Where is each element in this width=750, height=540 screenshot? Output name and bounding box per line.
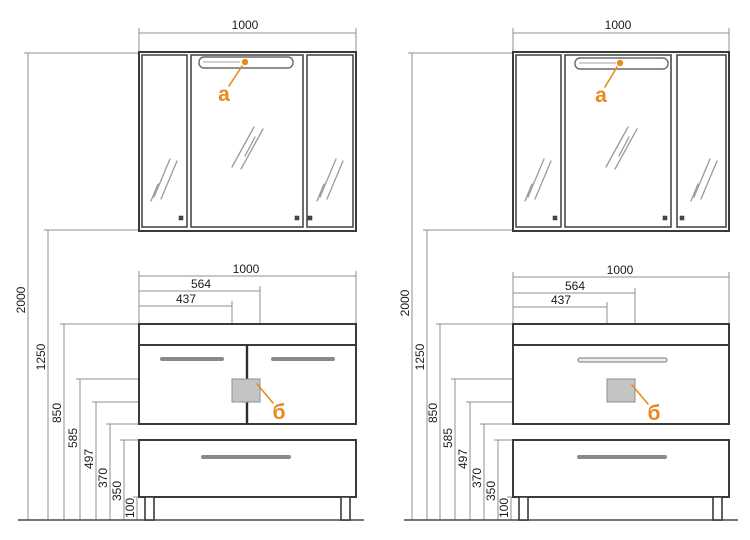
dimension-100: 100: [123, 497, 145, 520]
light-label-a: а: [595, 84, 607, 107]
height-label-2000: 2000: [398, 289, 412, 316]
callout-dot-a: [617, 60, 623, 66]
height-label-850: 850: [426, 403, 440, 423]
right-mirror-width-dimension: 1000: [513, 18, 729, 52]
lower-cabinet-body: [513, 440, 729, 497]
dim-437-label: 437: [551, 293, 571, 307]
dimension-100: 100: [497, 497, 519, 520]
mirror-door-center: [565, 55, 671, 227]
cabinet-leg: [713, 497, 722, 520]
height-label-585: 585: [441, 428, 455, 448]
cabinet-leg: [145, 497, 154, 520]
door-knob-icon: [179, 216, 183, 220]
height-label-497: 497: [456, 449, 470, 469]
right-vanity-cabinet: б: [513, 324, 729, 425]
height-label-100: 100: [497, 498, 511, 518]
door-knob-icon: [680, 216, 684, 220]
vanity-width-label: 1000: [607, 263, 634, 277]
drawer-handle-icon: [577, 455, 667, 459]
lower-cabinet-body: [139, 440, 356, 497]
mirror-door-left: [142, 55, 187, 227]
door-knob-icon: [663, 216, 667, 220]
height-label-350: 350: [484, 481, 498, 501]
door-knob-icon: [308, 216, 312, 220]
height-label-370: 370: [96, 468, 110, 488]
technical-drawing: 2000 1250 850 585 497: [0, 0, 750, 540]
height-label-585: 585: [66, 428, 80, 448]
drawer-handle-icon: [201, 455, 291, 459]
height-label-1250: 1250: [34, 343, 48, 370]
mirror-door-right: [307, 55, 353, 227]
left-diagram: 2000 1250 850 585 497: [14, 18, 364, 520]
light-label-a: а: [218, 83, 230, 106]
height-label-850: 850: [50, 403, 64, 423]
callout-dot-a: [242, 59, 248, 65]
drain-access-square: [607, 379, 635, 402]
drawer-handle-icon: [578, 358, 667, 362]
right-lower-cabinet: [513, 440, 729, 520]
drain-label-b: б: [273, 401, 286, 424]
door-handle-icon: [271, 357, 335, 361]
dim-437-label: 437: [176, 292, 196, 306]
mirror-door-right: [677, 55, 726, 227]
left-mirror-width-dimension: 1000: [139, 18, 356, 52]
height-label-370: 370: [470, 468, 484, 488]
left-vanity-cabinet: б: [139, 324, 356, 424]
door-knob-icon: [295, 216, 299, 220]
vanity-width-label: 1000: [233, 262, 260, 276]
diagram-canvas: 2000 1250 850 585 497: [0, 0, 750, 540]
dimension-2000: 2000: [14, 53, 139, 520]
dimension-850: 850: [50, 324, 139, 520]
dimension-1250: 1250: [34, 230, 139, 520]
door-knob-icon: [553, 216, 557, 220]
left-lower-cabinet: [139, 440, 356, 520]
door-handle-icon: [160, 357, 224, 361]
mirror-door-left: [516, 55, 561, 227]
dim-564-label: 564: [191, 277, 211, 291]
mirror-width-label: 1000: [232, 18, 259, 32]
right-diagram: 2000 1250 850 585 497: [398, 18, 738, 520]
cabinet-leg: [519, 497, 528, 520]
height-label-100: 100: [123, 498, 137, 518]
left-mirror-cabinet: [139, 52, 356, 231]
vanity-body: [513, 324, 729, 424]
dim-564-label: 564: [565, 279, 585, 293]
height-label-1250: 1250: [413, 343, 427, 370]
cabinet-leg: [341, 497, 350, 520]
drain-label-b: б: [648, 402, 661, 425]
drain-access-square: [232, 379, 260, 402]
mirror-width-label: 1000: [605, 18, 632, 32]
right-mirror-cabinet: [513, 52, 729, 231]
height-label-497: 497: [82, 449, 96, 469]
height-label-2000: 2000: [14, 286, 28, 313]
height-label-350: 350: [110, 481, 124, 501]
